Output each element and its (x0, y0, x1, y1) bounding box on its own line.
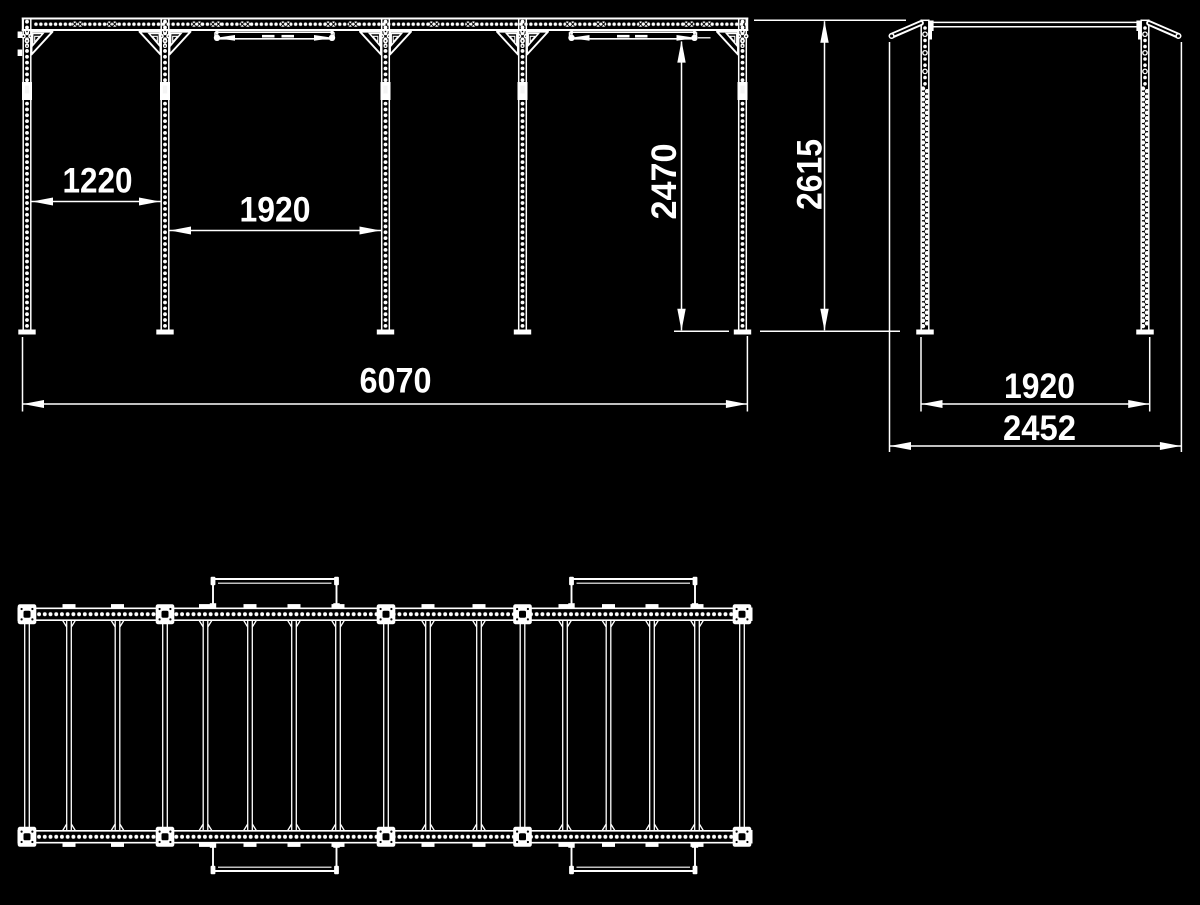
svg-text:1920: 1920 (240, 191, 311, 230)
svg-text:1920: 1920 (1004, 367, 1075, 406)
svg-text:2615: 2615 (791, 139, 830, 210)
svg-text:2452: 2452 (1003, 409, 1076, 448)
svg-text:2470: 2470 (645, 144, 684, 220)
svg-text:1220: 1220 (63, 162, 133, 201)
svg-text:6070: 6070 (360, 361, 432, 400)
